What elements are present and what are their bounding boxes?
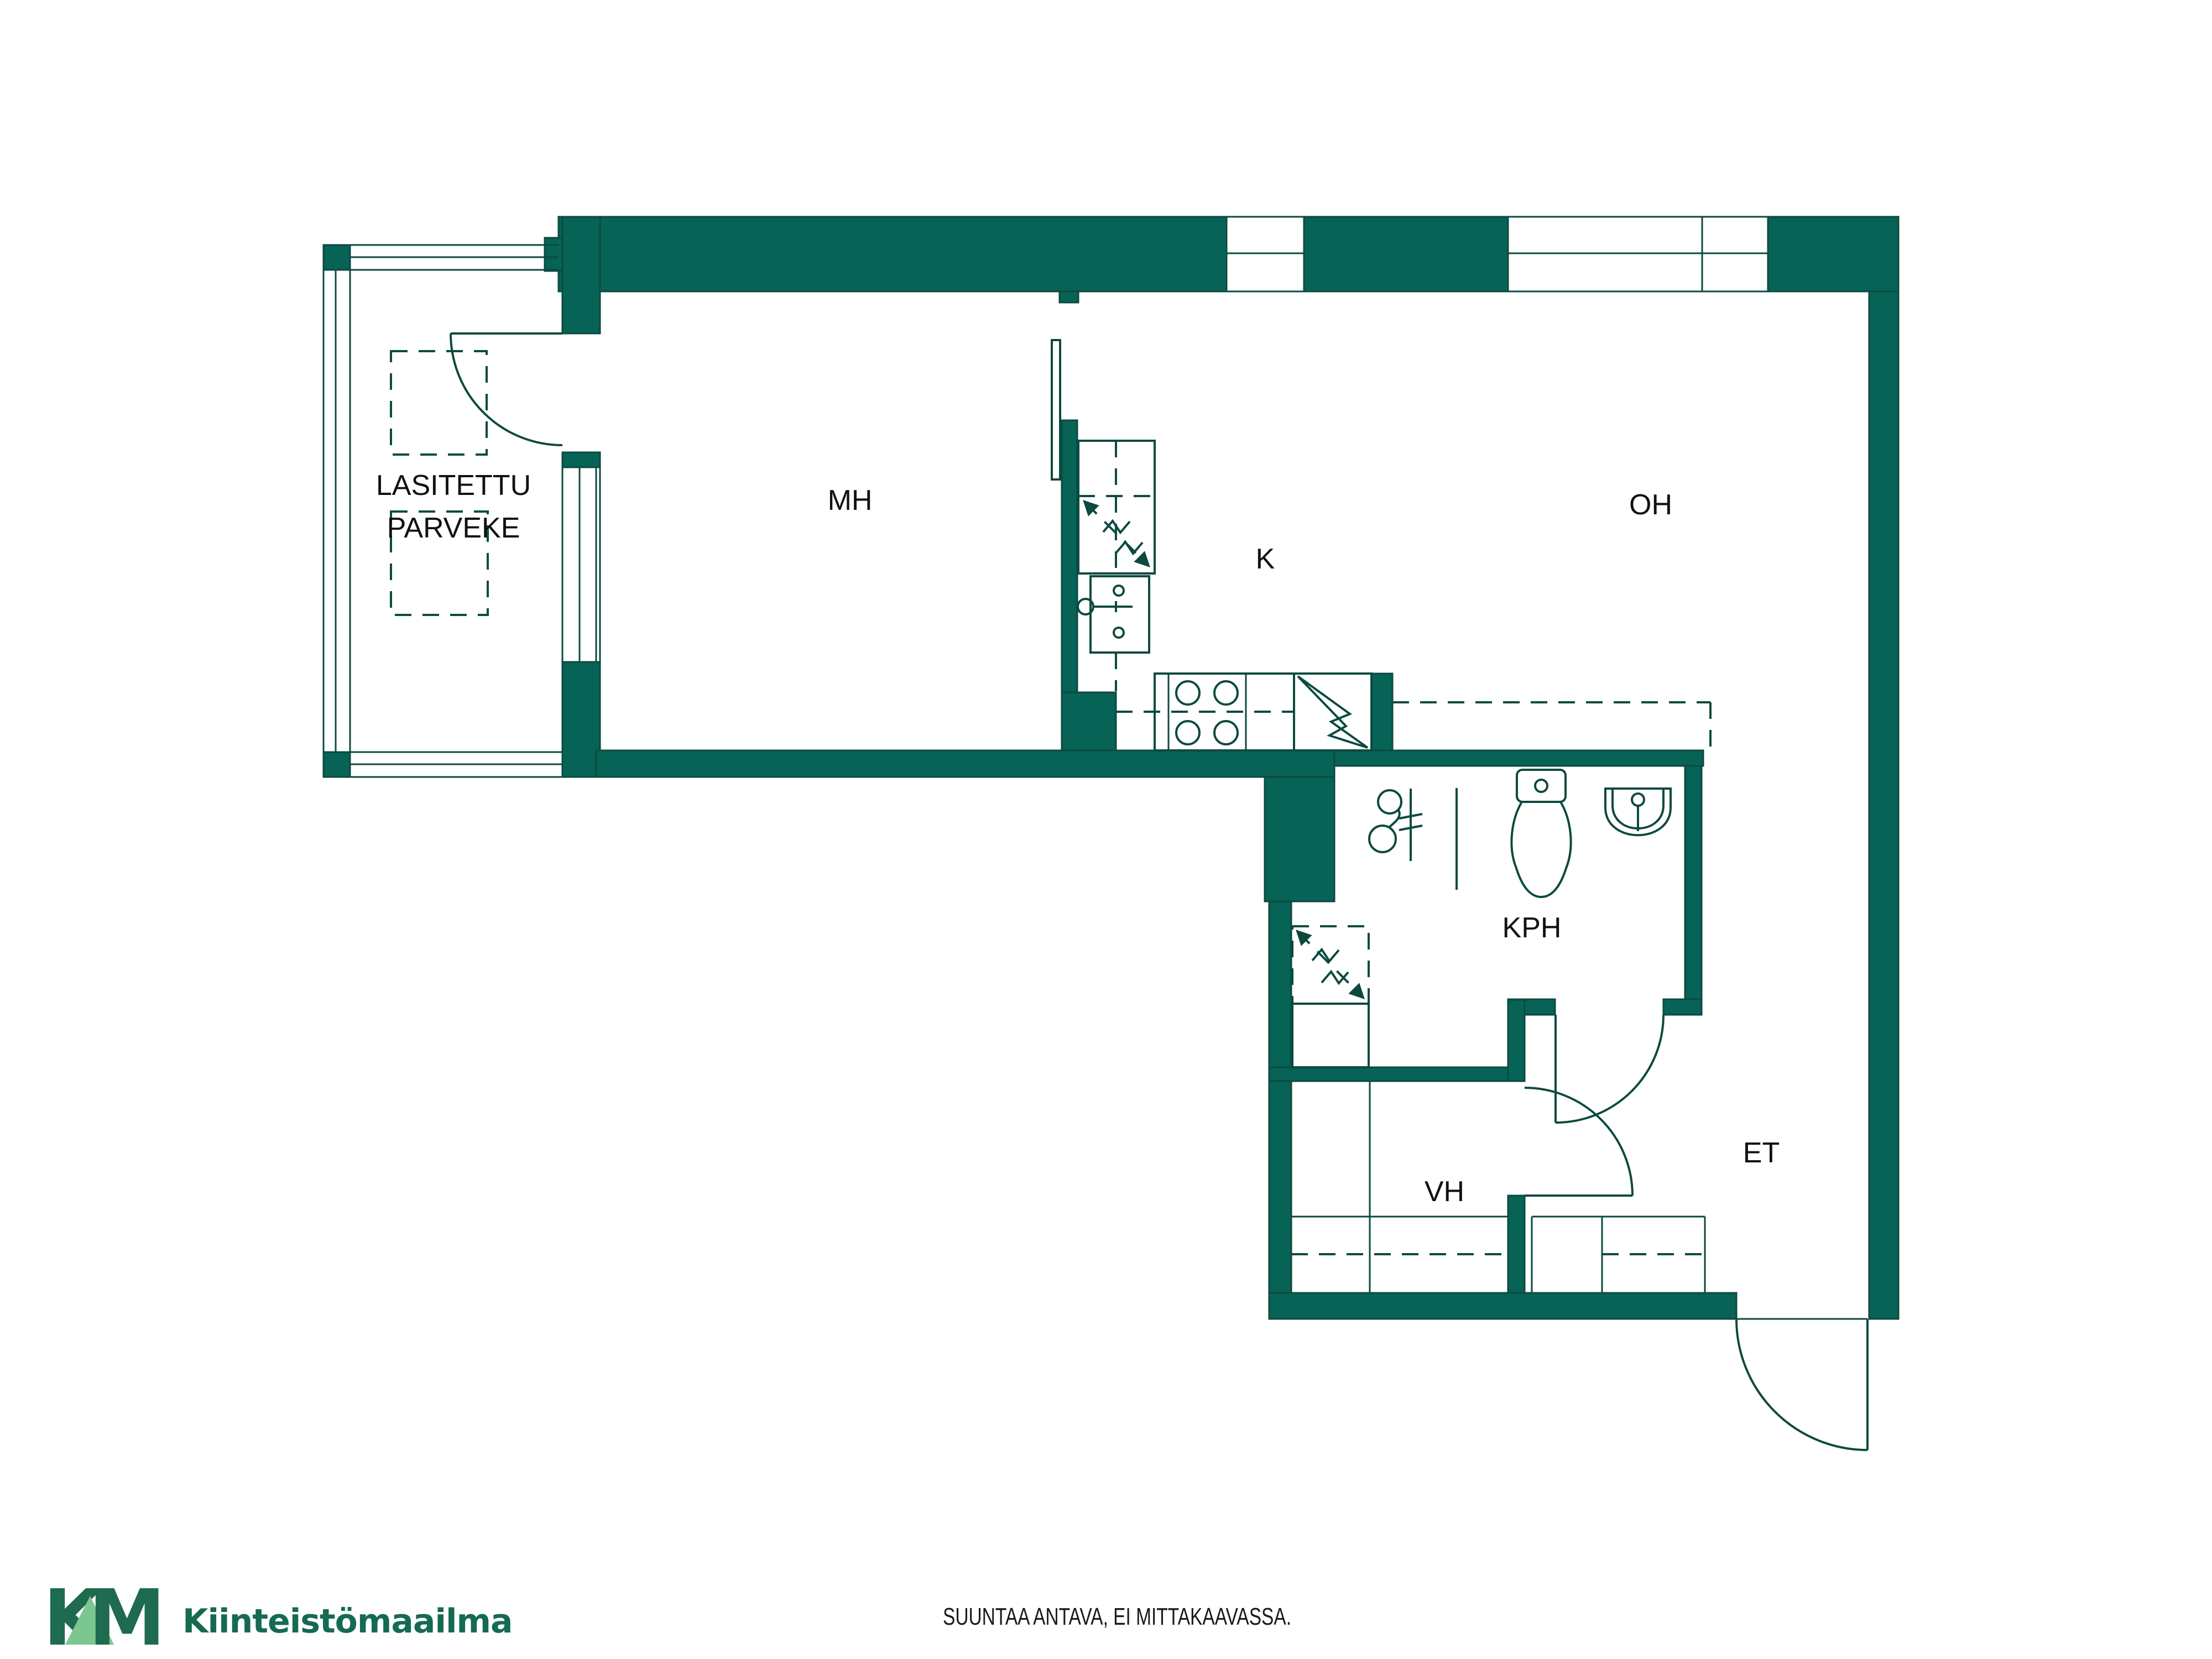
balcony (324, 245, 562, 777)
room-label-parveke-line2: PARVEKE (387, 512, 520, 544)
walls (545, 217, 1898, 1319)
washer-reservation (1292, 926, 1369, 1067)
washer-plinth-box (1292, 1004, 1369, 1067)
balcony-corner-top-left (324, 245, 350, 270)
wall-vh-top (1269, 1067, 1508, 1081)
wall-mh-k-stub (1060, 291, 1078, 302)
room-label-kph: KPH (1503, 912, 1562, 944)
wall-balcony-corner-block (545, 238, 562, 271)
kitchen (1078, 441, 1710, 750)
balcony-furniture-box-1 (391, 351, 487, 455)
wall-mh-k-pilaster (1062, 692, 1116, 750)
floor-plan-page: LASITETTU PARVEKE MH K OH KPH VH ET SUUN… (0, 0, 2212, 1659)
balcony-corner-bottom-left (324, 752, 350, 777)
wall-vh-et-partition-upper (1508, 1000, 1525, 1081)
wall-counter-stub (1371, 674, 1392, 750)
bathroom (1292, 770, 1671, 1067)
room-label-et: ET (1743, 1137, 1780, 1169)
room-label-mh: MH (828, 484, 873, 517)
room-label-parveke-line1: LASITETTU (376, 469, 531, 502)
wall-bottom-exterior (1269, 1293, 1736, 1319)
wall-right-exterior (1869, 291, 1898, 1319)
wall-kph-right-foot (1663, 999, 1702, 1015)
brand-logo: K M Kiinteistömaailma (43, 1573, 513, 1659)
logo-wordmark: Kiinteistömaailma (182, 1602, 513, 1641)
floor-plan: LASITETTU PARVEKE MH K OH KPH VH ET SUUN… (0, 0, 2212, 1659)
wall-kph-left-block (1265, 777, 1334, 901)
room-label-oh: OH (1629, 489, 1672, 521)
wall-mh-bottom (596, 750, 1334, 777)
wall-vh-et-partition-lower (1508, 1196, 1525, 1293)
wall-kph-top (1334, 750, 1703, 766)
wall-kph-right (1685, 766, 1702, 999)
wall-balcony-mh-top (562, 217, 600, 333)
bedroom-door-leaf (1052, 340, 1060, 479)
entry-door (1736, 1319, 1867, 1450)
wall-mh-k-partition (1062, 420, 1077, 692)
km-monogram-icon: K M (43, 1573, 165, 1659)
room-label-vh: VH (1425, 1176, 1464, 1208)
bathroom-door-swing-icon (1556, 1015, 1663, 1123)
wall-left-lower-exterior (1269, 901, 1291, 1293)
kitchen-sink-unit (1091, 576, 1149, 653)
window-mh (562, 467, 600, 662)
closets (1291, 1081, 1705, 1293)
toilet-icon (1511, 770, 1571, 897)
logo-letter-m: M (88, 1573, 165, 1659)
washbasin-icon (1605, 789, 1671, 835)
disclaimer-text: SUUNTAA ANTAVA, EI MITTAKAAVASSA. (943, 1603, 1291, 1630)
wall-balcony-mh-bottom (562, 662, 600, 777)
wall-balcony-mh-pier (562, 452, 600, 467)
room-label-k: K (1256, 543, 1275, 575)
entry-door-swing-icon (1736, 1319, 1867, 1450)
bathroom-door (1556, 1015, 1663, 1123)
shower-icon (1369, 789, 1422, 861)
